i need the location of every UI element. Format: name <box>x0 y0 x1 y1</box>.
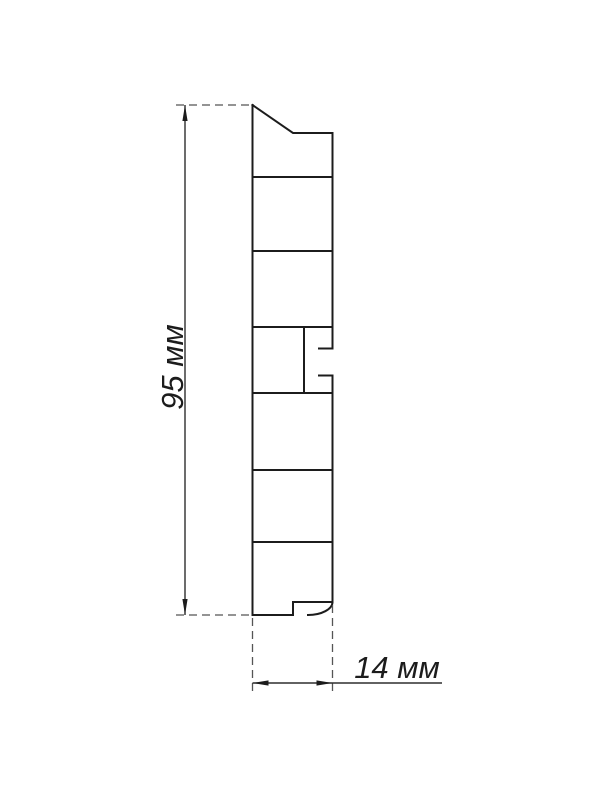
arrowheads-group <box>182 105 332 686</box>
profile-outline-group <box>253 105 333 615</box>
arrow-right-icon <box>317 680 333 685</box>
clip-notch-lines <box>319 349 333 376</box>
arrow-left-icon <box>253 680 269 685</box>
arrow-down-icon <box>182 599 187 615</box>
profile-internal-lines <box>253 177 333 542</box>
profile-drawing: 95 мм 14 мм <box>0 0 600 800</box>
extension-lines-group <box>176 105 333 694</box>
technical-drawing-page: 95 мм 14 мм <box>0 0 600 800</box>
profile-outer-contour <box>253 105 333 615</box>
height-dimension-label: 95 мм <box>155 324 190 410</box>
width-dimension-label: 14 мм <box>354 650 440 685</box>
arrow-up-icon <box>182 105 187 121</box>
dimension-labels-group: 95 мм 14 мм <box>155 324 440 685</box>
